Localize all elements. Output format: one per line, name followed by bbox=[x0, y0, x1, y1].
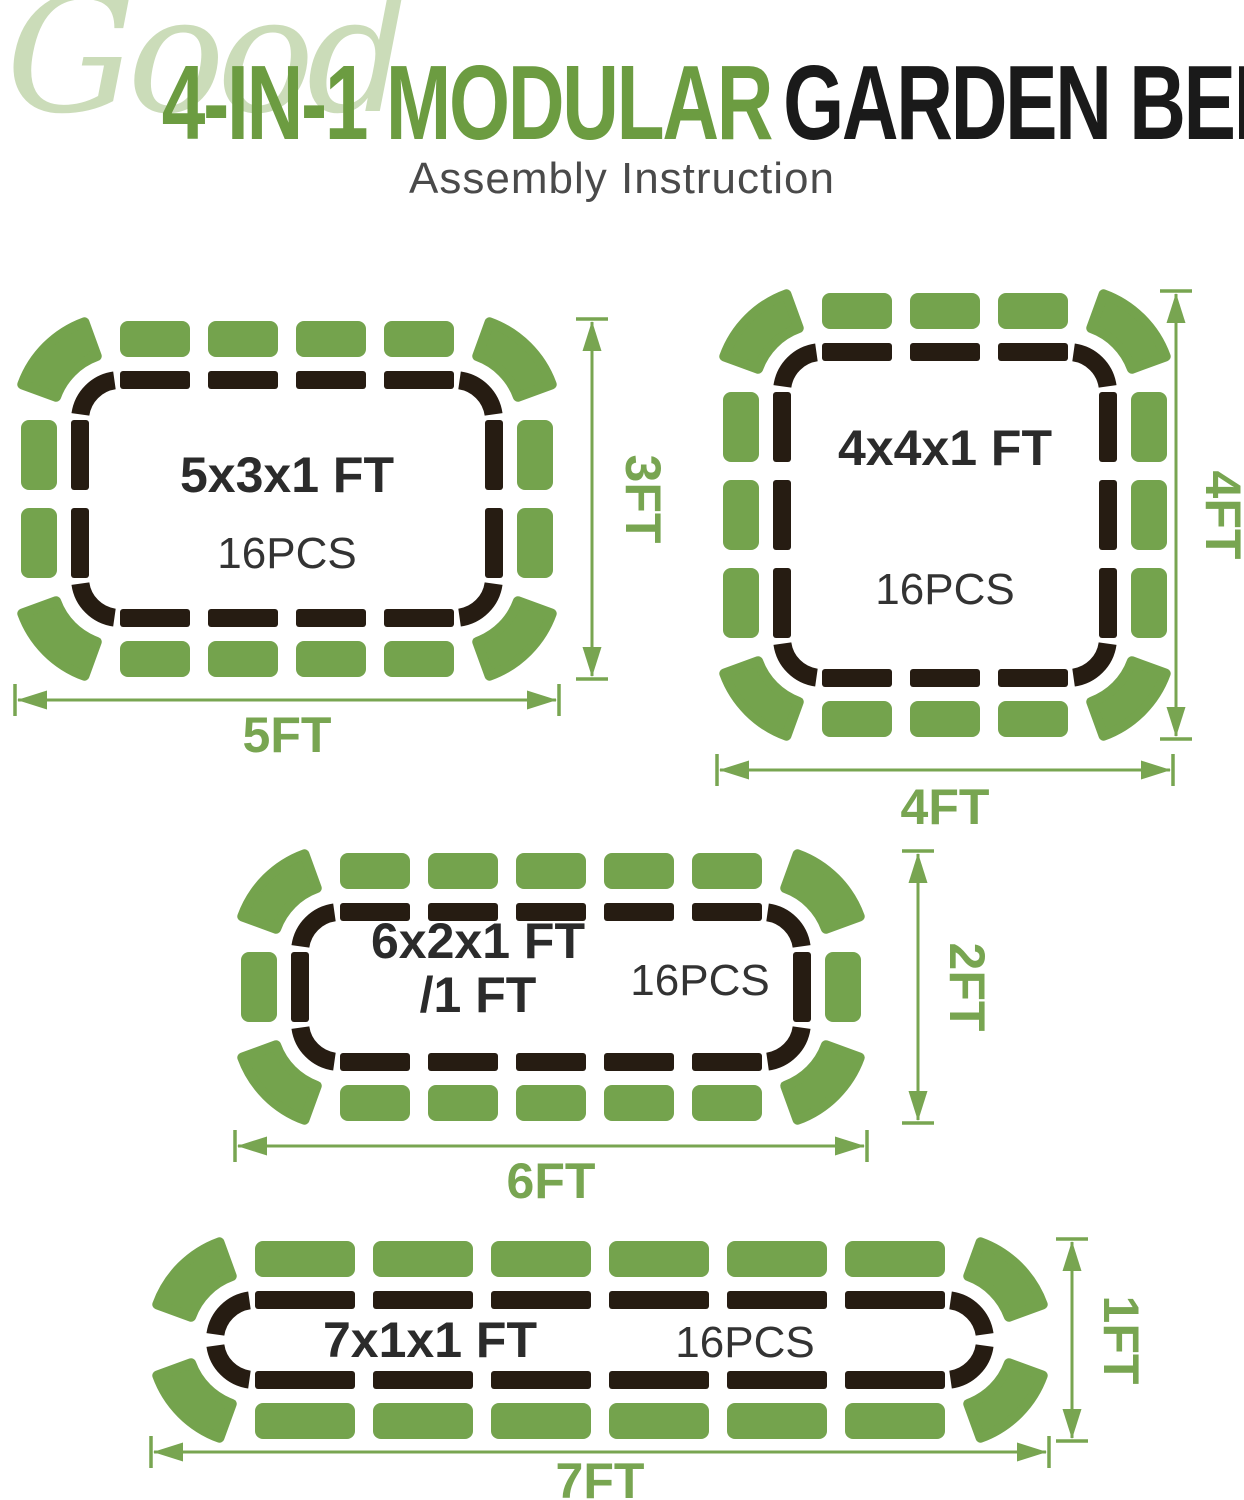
panel-block bbox=[516, 853, 586, 889]
frame-dash bbox=[1099, 568, 1117, 638]
arrow-down-icon bbox=[909, 1091, 928, 1121]
panel-block bbox=[517, 508, 553, 578]
size-label: /1 FT bbox=[420, 967, 537, 1023]
arrow-down-icon bbox=[1167, 707, 1186, 737]
panel-block bbox=[340, 853, 410, 889]
height-dimension: 4FT bbox=[1160, 291, 1244, 739]
size-label: 7x1x1 FT bbox=[323, 1312, 537, 1368]
frame-dash bbox=[516, 1053, 586, 1071]
panel-block bbox=[727, 1241, 827, 1277]
frame-corner-arc bbox=[951, 1300, 985, 1334]
arrow-right-icon bbox=[527, 691, 557, 710]
frame-dash bbox=[208, 609, 278, 627]
panel-block bbox=[1131, 568, 1167, 638]
height-dim-label: 3FT bbox=[615, 455, 671, 544]
panel-block bbox=[21, 508, 57, 578]
frame-dash bbox=[609, 1371, 709, 1389]
frame-dash bbox=[491, 1291, 591, 1309]
frame-dash bbox=[727, 1371, 827, 1389]
height-dimension: 1FT bbox=[1056, 1239, 1149, 1441]
width-dim-label: 6FT bbox=[507, 1153, 596, 1209]
panel-block bbox=[723, 480, 759, 550]
panel-block bbox=[384, 321, 454, 357]
panel-block bbox=[208, 321, 278, 357]
frame-dash bbox=[910, 343, 980, 361]
arrow-right-icon bbox=[1017, 1443, 1047, 1462]
frame-dash bbox=[373, 1371, 473, 1389]
pcs-label: 16PCS bbox=[217, 529, 356, 578]
frame-dash bbox=[491, 1371, 591, 1389]
frame-corner-arc bbox=[1074, 644, 1108, 678]
panel-block bbox=[1131, 480, 1167, 550]
panel-block bbox=[998, 293, 1068, 329]
height-dimension: 3FT bbox=[576, 319, 671, 679]
arrow-right-icon bbox=[835, 1137, 865, 1156]
arrow-left-icon bbox=[153, 1443, 183, 1462]
pcs-label: 16PCS bbox=[875, 565, 1014, 614]
frame-dash bbox=[998, 343, 1068, 361]
panel-block bbox=[384, 641, 454, 677]
frame-dash bbox=[773, 568, 791, 638]
frame-dash bbox=[773, 480, 791, 550]
frame-dash bbox=[340, 1053, 410, 1071]
arrow-up-icon bbox=[1063, 1241, 1082, 1271]
arrow-down-icon bbox=[1063, 1409, 1082, 1439]
panel-block bbox=[428, 1085, 498, 1121]
frame-dash bbox=[120, 609, 190, 627]
frame-dash bbox=[373, 1291, 473, 1309]
frame-corner-arc bbox=[460, 584, 494, 618]
frame-dash bbox=[609, 1291, 709, 1309]
arrow-up-icon bbox=[583, 321, 602, 351]
frame-dash bbox=[793, 952, 811, 1022]
frame-dash bbox=[692, 903, 762, 921]
frame-dash bbox=[71, 508, 89, 578]
frame-dash bbox=[485, 508, 503, 578]
arrow-down-icon bbox=[583, 647, 602, 677]
panel-block bbox=[491, 1241, 591, 1277]
panel-block bbox=[723, 568, 759, 638]
panel-block bbox=[604, 853, 674, 889]
panel-block bbox=[1131, 392, 1167, 462]
arrow-up-icon bbox=[1167, 293, 1186, 323]
frame-dash bbox=[822, 669, 892, 687]
panel-block bbox=[491, 1403, 591, 1439]
width-dim-label: 7FT bbox=[556, 1453, 645, 1500]
arrow-left-icon bbox=[719, 761, 749, 780]
panel-block bbox=[21, 420, 57, 490]
panel-block bbox=[241, 952, 277, 1022]
frame-corner-arc bbox=[782, 352, 816, 386]
frame-dash bbox=[773, 392, 791, 462]
size-label: 5x3x1 FT bbox=[180, 447, 394, 503]
width-dim-label: 4FT bbox=[901, 779, 990, 835]
pcs-label: 16PCS bbox=[675, 1318, 814, 1367]
frame-dash bbox=[845, 1291, 945, 1309]
frame-corner-arc bbox=[768, 1028, 802, 1062]
frame-dash bbox=[822, 343, 892, 361]
panel-block bbox=[208, 641, 278, 677]
frame-corner-arc bbox=[1074, 352, 1108, 386]
panel-block bbox=[825, 952, 861, 1022]
frame-dash bbox=[727, 1291, 827, 1309]
frame-dash bbox=[71, 420, 89, 490]
frame-dash bbox=[291, 952, 309, 1022]
frame-dash bbox=[296, 609, 366, 627]
size-label: 4x4x1 FT bbox=[838, 420, 1052, 476]
width-dim-label: 5FT bbox=[243, 707, 332, 763]
panel-block bbox=[296, 321, 366, 357]
height-dim-label: 1FT bbox=[1093, 1296, 1149, 1385]
panel-block bbox=[692, 853, 762, 889]
panel-block bbox=[296, 641, 366, 677]
width-dimension: 7FT bbox=[151, 1436, 1049, 1500]
frame-dash bbox=[692, 1053, 762, 1071]
panel-block bbox=[120, 321, 190, 357]
pcs-label: 16PCS bbox=[630, 956, 769, 1005]
frame-corner-arc bbox=[768, 912, 802, 946]
panel-block bbox=[255, 1241, 355, 1277]
frame-corner-arc bbox=[951, 1346, 985, 1380]
frame-corner-arc bbox=[215, 1346, 249, 1380]
diagram-bed-7x1: 7x1x1 FT16PCS1FT7FT bbox=[151, 1239, 1149, 1500]
panel-block bbox=[727, 1403, 827, 1439]
height-dimension: 2FT bbox=[902, 851, 995, 1123]
frame-dash bbox=[428, 1053, 498, 1071]
page: Good 4-IN-1 MODULARGARDEN BED Assembly I… bbox=[0, 0, 1244, 1500]
panel-block bbox=[822, 701, 892, 737]
panel-block bbox=[910, 701, 980, 737]
frame-dash bbox=[255, 1291, 355, 1309]
diagram-bed-5x3: 5x3x1 FT16PCS3FT5FT bbox=[15, 319, 671, 763]
panel-block bbox=[609, 1403, 709, 1439]
frame-dash bbox=[255, 1371, 355, 1389]
frame-corner-arc bbox=[215, 1300, 249, 1334]
panel-block bbox=[692, 1085, 762, 1121]
frame-corner-arc bbox=[80, 380, 114, 414]
frame-corner-arc bbox=[300, 1028, 334, 1062]
panel-block bbox=[373, 1403, 473, 1439]
size-label: 6x2x1 FT bbox=[371, 913, 585, 969]
frame-dash bbox=[120, 371, 190, 389]
panel-block bbox=[120, 641, 190, 677]
width-dimension: 6FT bbox=[235, 1130, 867, 1209]
panel-block bbox=[517, 420, 553, 490]
frame-dash bbox=[384, 609, 454, 627]
frame-corner-arc bbox=[460, 380, 494, 414]
frame-corner-arc bbox=[300, 912, 334, 946]
panel-block bbox=[604, 1085, 674, 1121]
arrow-up-icon bbox=[909, 853, 928, 883]
panel-block bbox=[255, 1403, 355, 1439]
frame-dash bbox=[604, 1053, 674, 1071]
panel-block bbox=[845, 1241, 945, 1277]
panel-block bbox=[910, 293, 980, 329]
panel-block bbox=[822, 293, 892, 329]
panel-block bbox=[609, 1241, 709, 1277]
panel-block bbox=[516, 1085, 586, 1121]
diagrams-canvas: 5x3x1 FT16PCS3FT5FT4x4x1 FT16PCS4FT4FT6x… bbox=[0, 0, 1244, 1500]
diagram-bed-6x2: 6x2x1 FT/1 FT16PCS2FT6FT bbox=[235, 851, 995, 1209]
frame-dash bbox=[998, 669, 1068, 687]
frame-dash bbox=[208, 371, 278, 389]
panel-block bbox=[845, 1403, 945, 1439]
frame-dash bbox=[296, 371, 366, 389]
panel-block bbox=[373, 1241, 473, 1277]
frame-corner-arc bbox=[80, 584, 114, 618]
height-dim-label: 4FT bbox=[1195, 471, 1244, 560]
panel-block bbox=[723, 392, 759, 462]
arrow-left-icon bbox=[17, 691, 47, 710]
panel-block bbox=[428, 853, 498, 889]
width-dimension: 4FT bbox=[717, 754, 1173, 835]
panel-block bbox=[340, 1085, 410, 1121]
frame-dash bbox=[910, 669, 980, 687]
frame-dash bbox=[845, 1371, 945, 1389]
arrow-right-icon bbox=[1141, 761, 1171, 780]
frame-dash bbox=[384, 371, 454, 389]
frame-dash bbox=[485, 420, 503, 490]
height-dim-label: 2FT bbox=[939, 943, 995, 1032]
frame-dash bbox=[604, 903, 674, 921]
arrow-left-icon bbox=[237, 1137, 267, 1156]
panel-block bbox=[998, 701, 1068, 737]
width-dimension: 5FT bbox=[15, 684, 559, 763]
frame-dash bbox=[1099, 480, 1117, 550]
diagram-bed-4x4: 4x4x1 FT16PCS4FT4FT bbox=[717, 291, 1244, 835]
frame-corner-arc bbox=[782, 644, 816, 678]
frame-dash bbox=[1099, 392, 1117, 462]
